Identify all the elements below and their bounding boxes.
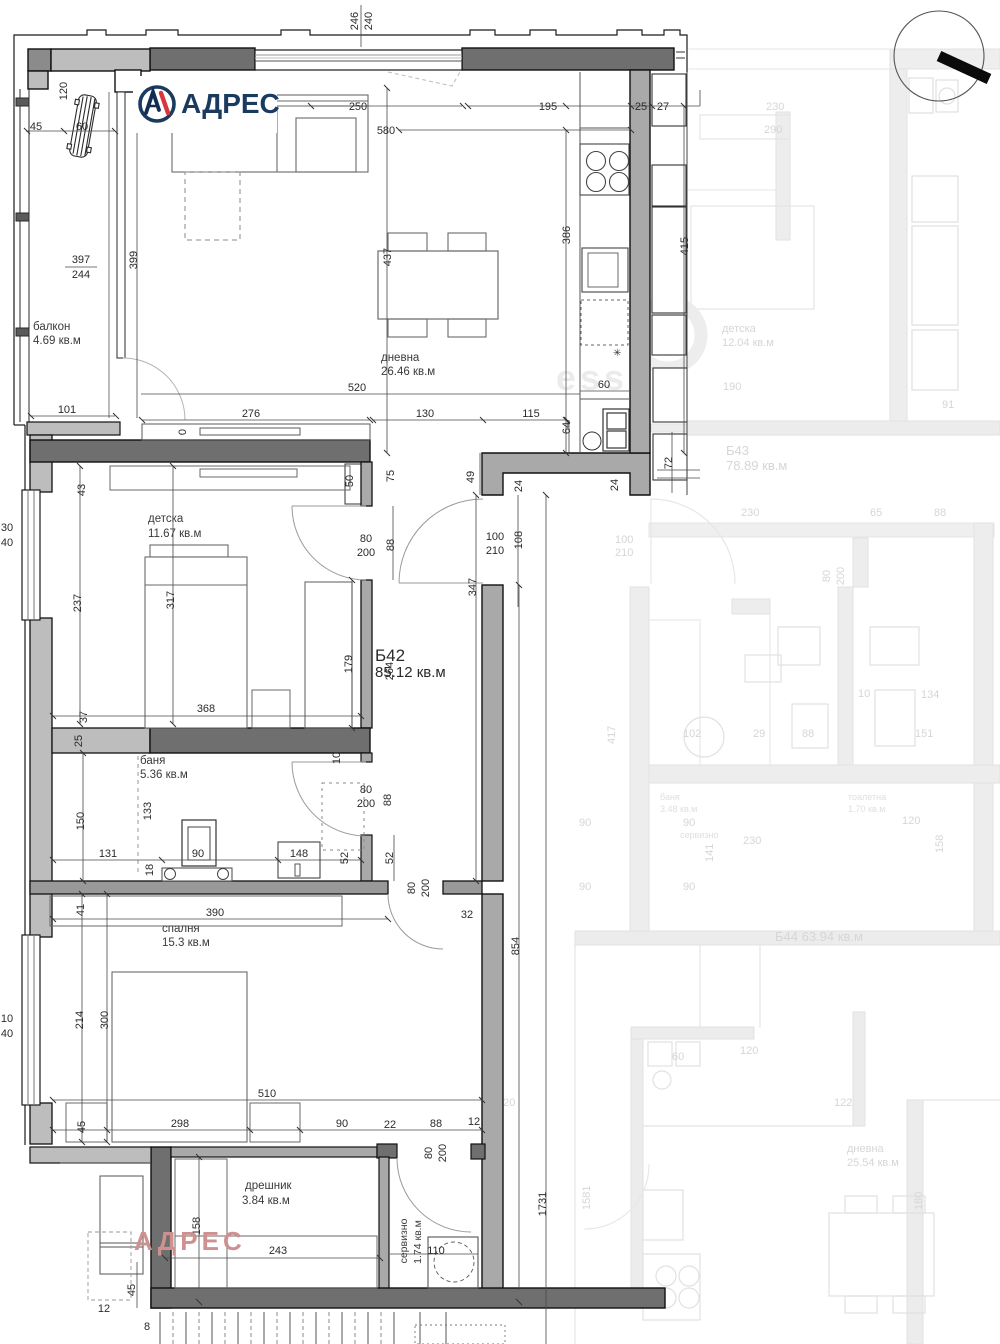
svg-text:43: 43: [76, 484, 88, 496]
svg-text:25: 25: [73, 735, 85, 747]
svg-text:52: 52: [384, 852, 396, 864]
svg-text:244: 244: [72, 269, 90, 281]
svg-text:10: 10: [331, 752, 343, 764]
svg-text:78.89 кв.м: 78.89 кв.м: [726, 458, 787, 473]
svg-text:399: 399: [128, 251, 140, 269]
svg-text:158: 158: [934, 835, 946, 853]
svg-text:дневна: дневна: [381, 352, 420, 364]
svg-text:397: 397: [72, 254, 90, 266]
svg-text:276: 276: [242, 408, 260, 420]
svg-text:1.74 кв.м: 1.74 кв.м: [412, 1220, 424, 1264]
svg-text:18: 18: [144, 864, 156, 876]
svg-text:60: 60: [76, 121, 88, 133]
svg-text:3.48 кв.м: 3.48 кв.м: [660, 804, 697, 814]
svg-text:90: 90: [683, 817, 695, 829]
svg-text:ess: ess: [556, 357, 628, 398]
svg-text:15.3 кв.м: 15.3 кв.м: [162, 937, 210, 949]
svg-text:290: 290: [764, 124, 782, 136]
svg-text:12: 12: [98, 1303, 110, 1315]
svg-text:510: 510: [258, 1088, 276, 1100]
svg-text:80: 80: [821, 570, 833, 582]
svg-text:80: 80: [360, 784, 372, 796]
svg-text:210: 210: [486, 545, 504, 557]
svg-text:417: 417: [606, 726, 618, 744]
svg-text:100: 100: [486, 531, 504, 543]
svg-text:240: 240: [363, 12, 375, 30]
svg-text:45: 45: [76, 1121, 88, 1133]
svg-text:Б43: Б43: [726, 443, 749, 458]
svg-text:246: 246: [349, 12, 361, 30]
svg-text:88: 88: [385, 539, 397, 551]
svg-text:балкон: балкон: [33, 321, 70, 333]
svg-text:243: 243: [269, 1245, 287, 1257]
svg-text:88: 88: [802, 728, 814, 740]
svg-text:179: 179: [343, 655, 355, 673]
svg-text:75: 75: [385, 470, 397, 482]
svg-text:230: 230: [743, 835, 761, 847]
svg-text:5.36 кв.м: 5.36 кв.м: [140, 769, 188, 781]
svg-text:134: 134: [921, 689, 939, 701]
svg-text:214: 214: [74, 1011, 86, 1029]
svg-text:102: 102: [683, 728, 701, 740]
svg-text:32: 32: [461, 909, 473, 921]
svg-text:298: 298: [171, 1118, 189, 1130]
svg-text:141: 141: [704, 844, 716, 862]
svg-text:520: 520: [348, 382, 366, 394]
svg-text:317: 317: [165, 591, 177, 609]
svg-text:88: 88: [934, 507, 946, 519]
svg-text:25: 25: [635, 101, 647, 113]
svg-text:25.54 кв.м: 25.54 кв.м: [847, 1157, 899, 1169]
svg-text:45: 45: [126, 1284, 138, 1296]
svg-text:45: 45: [30, 121, 42, 133]
svg-text:60: 60: [672, 1051, 684, 1063]
svg-text:дневна: дневна: [847, 1143, 885, 1155]
svg-text:8: 8: [144, 1321, 150, 1333]
svg-text:120: 120: [58, 82, 70, 100]
svg-text:415: 415: [679, 237, 691, 255]
svg-text:200: 200: [835, 567, 847, 585]
svg-text:26.46 кв.м: 26.46 кв.м: [381, 366, 435, 378]
svg-text:90: 90: [336, 1118, 348, 1130]
svg-text:131: 131: [99, 848, 117, 860]
svg-text:120: 120: [902, 815, 920, 827]
svg-text:Б42: Б42: [375, 646, 405, 665]
svg-text:200: 200: [357, 547, 375, 559]
svg-text:АДРЕС: АДРЕС: [134, 1226, 246, 1256]
svg-text:300: 300: [99, 1011, 111, 1029]
svg-text:12.04 кв.м: 12.04 кв.м: [722, 337, 774, 349]
svg-text:сервизно: сервизно: [680, 830, 718, 840]
svg-text:52: 52: [339, 852, 351, 864]
svg-text:151: 151: [915, 728, 933, 740]
svg-text:150: 150: [75, 812, 87, 830]
svg-text:30: 30: [1, 522, 13, 534]
svg-text:баня: баня: [660, 792, 680, 802]
svg-text:80: 80: [423, 1147, 435, 1159]
svg-text:40: 40: [1, 1028, 13, 1040]
svg-text:1.70 кв.м: 1.70 кв.м: [848, 804, 885, 814]
svg-text:130: 130: [416, 408, 434, 420]
svg-text:85.12 кв.м: 85.12 кв.м: [375, 664, 446, 681]
svg-text:230: 230: [741, 507, 759, 519]
svg-text:200: 200: [437, 1144, 449, 1162]
svg-text:110: 110: [427, 1245, 445, 1257]
svg-text:27: 27: [657, 101, 669, 113]
svg-text:90: 90: [579, 817, 591, 829]
svg-text:368: 368: [197, 703, 215, 715]
svg-text:190: 190: [723, 381, 741, 393]
svg-text:230: 230: [766, 101, 784, 113]
svg-text:10: 10: [858, 688, 870, 700]
svg-text:90: 90: [683, 881, 695, 893]
svg-text:детска: детска: [148, 513, 184, 525]
svg-text:3.84 кв.м: 3.84 кв.м: [242, 1195, 290, 1207]
svg-text:50: 50: [344, 475, 356, 487]
svg-text:детска: детска: [722, 323, 757, 335]
svg-text:65: 65: [870, 507, 882, 519]
svg-text:✳: ✳: [613, 348, 621, 359]
svg-text:64: 64: [561, 422, 573, 434]
svg-text:0: 0: [177, 429, 189, 435]
svg-text:12: 12: [468, 1116, 480, 1128]
svg-text:сервизно: сервизно: [398, 1218, 410, 1263]
svg-text:22: 22: [384, 1119, 396, 1131]
svg-text:80: 80: [406, 882, 418, 894]
svg-text:спалня: спалня: [162, 923, 200, 935]
svg-text:101: 101: [58, 404, 76, 416]
svg-text:133: 133: [142, 802, 154, 820]
svg-text:386: 386: [561, 226, 573, 244]
svg-text:250: 250: [349, 101, 367, 113]
svg-text:1581: 1581: [581, 1186, 593, 1210]
svg-text:347: 347: [467, 578, 479, 596]
svg-text:237: 237: [72, 594, 84, 612]
svg-text:91: 91: [942, 399, 954, 411]
svg-text:200: 200: [420, 879, 432, 897]
svg-text:108: 108: [513, 531, 525, 549]
svg-text:10: 10: [1, 1013, 13, 1025]
svg-text:580: 580: [377, 125, 395, 137]
svg-text:11.67 кв.м: 11.67 кв.м: [148, 528, 201, 540]
svg-text:88: 88: [430, 1118, 442, 1130]
svg-text:210: 210: [615, 547, 633, 559]
svg-text:60: 60: [598, 379, 610, 391]
svg-text:88: 88: [382, 794, 394, 806]
svg-text:120: 120: [740, 1045, 758, 1057]
svg-text:24: 24: [513, 480, 525, 492]
svg-text:тоалетна: тоалетна: [848, 792, 886, 802]
svg-text:854: 854: [510, 937, 522, 955]
svg-text:200: 200: [357, 798, 375, 810]
svg-text:4.69 кв.м: 4.69 кв.м: [33, 335, 81, 347]
svg-text:390: 390: [206, 907, 224, 919]
svg-text:40: 40: [1, 537, 13, 549]
svg-text:49: 49: [465, 471, 477, 483]
svg-text:41: 41: [75, 904, 87, 916]
svg-text:Б44 63.94 кв.м: Б44 63.94 кв.м: [775, 929, 863, 944]
svg-text:80: 80: [360, 533, 372, 545]
svg-text:195: 195: [539, 101, 557, 113]
svg-text:29: 29: [753, 728, 765, 740]
svg-text:72: 72: [663, 457, 675, 469]
svg-text:148: 148: [290, 848, 308, 860]
svg-text:37: 37: [78, 711, 90, 723]
svg-text:90: 90: [192, 848, 204, 860]
svg-text:100: 100: [615, 534, 633, 546]
svg-text:115: 115: [522, 408, 540, 420]
svg-text:24: 24: [609, 479, 621, 491]
svg-text:180: 180: [913, 1192, 925, 1210]
svg-text:90: 90: [579, 881, 591, 893]
svg-text:баня: баня: [140, 755, 165, 767]
svg-text:дрешник: дрешник: [245, 1180, 293, 1192]
svg-text:1731: 1731: [537, 1192, 549, 1216]
svg-text:437: 437: [382, 248, 394, 266]
svg-text:АДРЕС: АДРЕС: [181, 88, 280, 119]
svg-text:122: 122: [834, 1097, 852, 1109]
